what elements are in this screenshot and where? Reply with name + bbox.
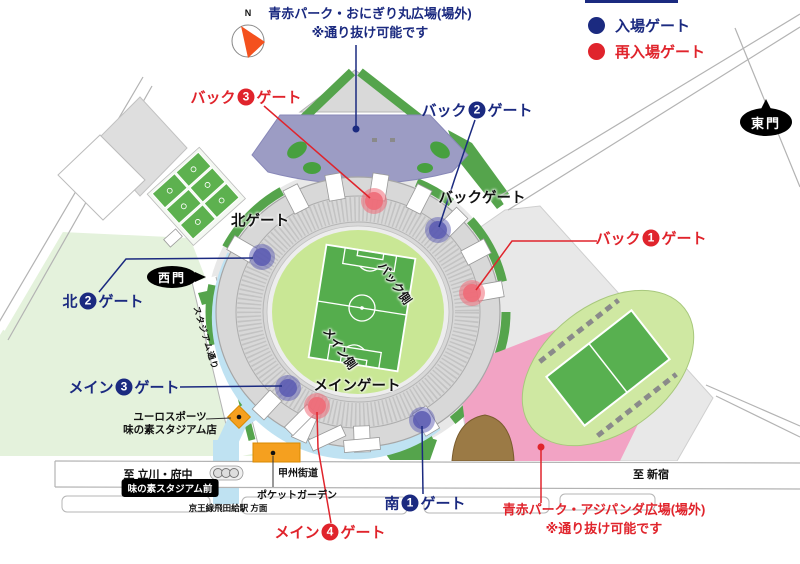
koshu-kaido-label: 甲州街道 [278, 465, 318, 480]
gate-label-main3: メイン 3 ゲート [68, 377, 179, 398]
gate-label-kitagate: 北ゲート [231, 210, 289, 231]
entry-gate-legend-label: 入場ゲート [615, 15, 690, 36]
east-portal-tag: 東門 [740, 108, 792, 136]
eurosport-marker-dot [237, 415, 242, 420]
eurosport-label: ユーロスポーツ 味の素スタジアム店 [123, 411, 217, 437]
reentry-gate-legend-label: 再入場ゲート [615, 41, 705, 62]
legend-entry-row: 入場ゲート [588, 15, 705, 36]
ajipanda-plaza-label: 青赤パーク・アジパンダ広場(場外) ※通り抜け可能です [503, 501, 706, 539]
gate-label-back2: バック 2 ゲート [421, 100, 532, 121]
to-shinjuku-label: 至 新宿 [633, 466, 669, 482]
onigiri-marker-dot [353, 126, 360, 133]
gate-label-back3: バック 3 ゲート [190, 87, 301, 108]
pocket-garden-label: ポケットガーデン [257, 487, 337, 502]
stadium-gate-map: 入場ゲート 再入場ゲート N 青赤パーク・おにぎり丸広場(場外) ※通り抜け可能… [0, 0, 800, 564]
west-portal-pointer [195, 272, 206, 282]
gate-label-main4: メイン 4 ゲート [274, 522, 385, 543]
entry-gate-legend-icon [588, 17, 605, 34]
legend-reentry-row: 再入場ゲート [588, 41, 705, 62]
gate-label-back1: バック 1 ゲート [595, 228, 706, 249]
west-portal-tag: 西門 [147, 266, 197, 288]
pocket-garden-building [253, 443, 300, 462]
gate-label-maingate: メインゲート [314, 375, 401, 396]
compass-icon [232, 25, 265, 58]
gate-label-kita2: 北 2 ゲート [62, 291, 143, 312]
legend: 入場ゲート 再入場ゲート [588, 15, 705, 62]
onigiri-plaza-label: 青赤パーク・おにぎり丸広場(場外) ※通り抜け可能です [268, 5, 471, 43]
cropped-top-element [585, 0, 678, 3]
bus-stop-tag: 味の素スタジアム前 [122, 479, 219, 497]
reentry-gate-legend-icon [588, 43, 605, 60]
soccer-pitch [309, 245, 416, 372]
gate-label-backgate: バックゲート [439, 187, 526, 208]
pocket-garden-marker-dot [271, 451, 276, 456]
station-exits [210, 466, 243, 480]
east-portal-pointer [761, 99, 771, 109]
gate-label-minami1: 南 1 ゲート [384, 493, 465, 514]
compass-north-label: N [245, 8, 252, 18]
station-direction-label: 京王線飛田給駅 方面 [189, 502, 268, 514]
ajipanda-marker-dot [538, 444, 545, 451]
